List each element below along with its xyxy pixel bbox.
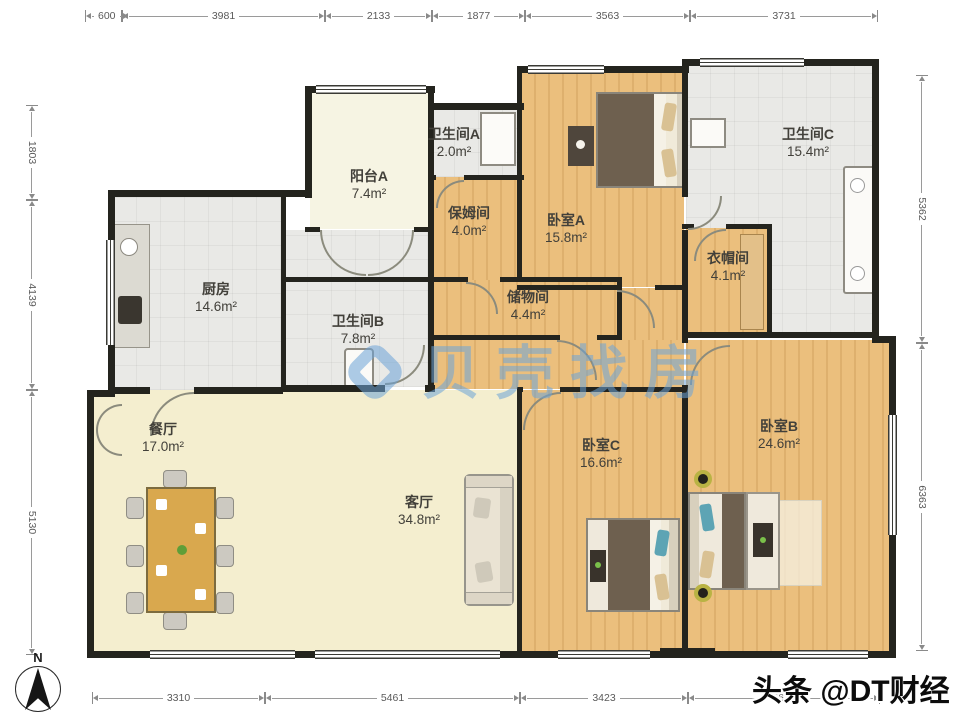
dimension-right: 6363 xyxy=(916,343,928,651)
window xyxy=(150,650,295,659)
bedroom-a-nightstand xyxy=(568,126,594,166)
window xyxy=(788,650,868,659)
dimension-bottom: 3310 xyxy=(92,692,265,704)
dimension-right: 5362 xyxy=(916,75,928,343)
room-label-balcony-a: 阳台A7.4m² xyxy=(327,168,411,202)
room-label-cloakroom: 衣帽间4.1m² xyxy=(685,250,771,284)
wall xyxy=(428,103,524,110)
dimension-bottom: 3423 xyxy=(520,692,688,704)
dimension-bottom: 5461 xyxy=(265,692,520,704)
wall xyxy=(87,390,94,658)
room-label-bedroom-c: 卧室C16.6m² xyxy=(555,437,647,471)
dining-chair xyxy=(216,545,234,567)
bath-c-basin xyxy=(850,266,865,281)
window xyxy=(700,58,804,67)
bedroom-b-bed xyxy=(688,492,746,590)
dimension-top: 3981 xyxy=(122,10,325,22)
bath-c-basin xyxy=(850,178,865,193)
dimension-top: 2133 xyxy=(325,10,432,22)
dining-chair xyxy=(216,497,234,519)
window xyxy=(106,240,115,345)
dimension-top: 3731 xyxy=(690,10,878,22)
dimension-left: 5130 xyxy=(26,390,38,655)
dining-chair xyxy=(126,545,144,567)
room-label-bath-c: 卫生间C15.4m² xyxy=(760,126,856,160)
room-label-bath-a: 卫生间A2.0m² xyxy=(408,126,500,160)
dining-table xyxy=(146,487,216,613)
compass-north-label: N xyxy=(14,650,62,665)
watermark-credit: 头条 @DT财经 xyxy=(752,666,950,710)
wall xyxy=(305,227,320,232)
wall xyxy=(517,387,522,658)
window xyxy=(315,650,500,659)
window xyxy=(528,65,604,74)
room-label-bedroom-a: 卧室A15.8m² xyxy=(520,212,612,246)
wall xyxy=(305,86,312,198)
wall xyxy=(726,224,772,229)
dimension-left: 1803 xyxy=(26,105,38,200)
sofa xyxy=(464,474,514,606)
floor-plan: 阳台A7.4m² 卫生间A2.0m² 保姆间4.0m² 卧室A15.8m² 卫生… xyxy=(0,0,960,720)
compass-needle-icon xyxy=(25,668,51,710)
wall xyxy=(682,385,688,658)
wall xyxy=(194,387,283,394)
wall xyxy=(281,190,286,392)
wall xyxy=(108,387,150,394)
dimension-top: 3563 xyxy=(525,10,690,22)
dining-chair xyxy=(216,592,234,614)
wall xyxy=(682,59,688,197)
bedroom-c-bed xyxy=(586,518,680,612)
compass-icon xyxy=(15,666,61,712)
wall xyxy=(428,175,436,180)
beike-logo-icon xyxy=(342,339,407,404)
compass: N xyxy=(14,650,62,712)
window xyxy=(316,85,426,94)
kitchen-stove xyxy=(118,296,142,324)
bedroom-b-dresser xyxy=(746,492,780,590)
room-label-kitchen: 厨房14.6m² xyxy=(170,281,262,315)
dining-chair xyxy=(126,497,144,519)
watermark-brand-text: 贝壳找房 xyxy=(422,326,718,410)
dining-chair xyxy=(163,470,187,488)
dimension-left: 4139 xyxy=(26,200,38,390)
wall xyxy=(281,277,468,282)
bedroom-b-stool xyxy=(694,584,712,602)
dimension-top: 1877 xyxy=(432,10,525,22)
wall xyxy=(464,175,524,180)
room-label-bedroom-b: 卧室B24.6m² xyxy=(733,418,825,452)
dining-chair xyxy=(126,592,144,614)
wall xyxy=(872,59,879,343)
bedroom-b-stool xyxy=(694,470,712,488)
room-label-living: 客厅34.8m² xyxy=(373,494,465,528)
dimension-top: 600 xyxy=(85,10,122,22)
room-label-dining: 餐厅17.0m² xyxy=(117,421,209,455)
bath-c-sink xyxy=(690,118,726,148)
kitchen-sink xyxy=(120,238,138,256)
window xyxy=(558,650,650,659)
watermark-beike: 贝壳找房 xyxy=(352,326,718,410)
window xyxy=(888,415,897,535)
bedroom-a-bed xyxy=(596,92,688,188)
room-label-nanny-room: 保姆间4.0m² xyxy=(423,205,515,239)
wall xyxy=(517,66,522,282)
dining-chair xyxy=(163,612,187,630)
room-label-storage: 储物间4.4m² xyxy=(482,289,574,323)
